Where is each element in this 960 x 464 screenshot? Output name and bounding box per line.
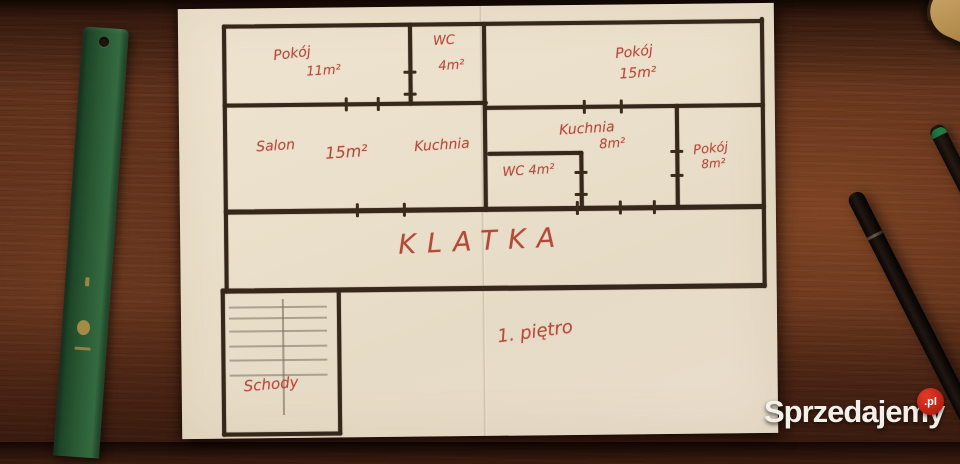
- room-area-pokoj-right: 8m²: [701, 156, 726, 171]
- wooden-object-corner: [917, 0, 960, 52]
- ruler: [53, 26, 129, 458]
- wall-outer-top: [222, 19, 764, 29]
- door-mark: [356, 203, 359, 217]
- wall-stairs-right: [337, 290, 343, 435]
- watermark-tld-badge: .pl: [917, 388, 944, 415]
- pen-green-band: [929, 125, 947, 139]
- green-tip-pen: [928, 122, 960, 232]
- wall-row1-bottom-right: [485, 103, 765, 110]
- floor-plan-paper: Pokój 11m² WC 4m² Pokój 15m² Salon 15m² …: [178, 3, 778, 439]
- watermark-tld: .pl: [924, 396, 937, 408]
- stair-tread: [229, 317, 327, 320]
- door-mark: [575, 193, 588, 196]
- wall-hall-bottom: [221, 283, 767, 294]
- door-mark: [620, 99, 623, 113]
- stairs-label: Schody: [243, 373, 299, 395]
- stair-tread: [229, 345, 327, 348]
- room-label-pokoj-top-left: Pokój: [272, 44, 311, 64]
- door-mark: [653, 200, 656, 214]
- wall-outer-right: [760, 17, 767, 288]
- stair-tread: [229, 306, 327, 309]
- room-label-kuchnia-open: Kuchnia: [414, 136, 470, 155]
- room-label-wc-top: WC: [433, 33, 456, 49]
- ruler-logo: [77, 320, 91, 336]
- room-label-pokoj-top-right: Pokój: [615, 43, 654, 63]
- ruler-hole: [99, 37, 110, 48]
- door-mark: [377, 97, 380, 111]
- ruler-logo-mark: [85, 277, 90, 286]
- wall-hall-top: [224, 204, 766, 215]
- room-label-kuchnia-right: Kuchnia: [559, 119, 615, 138]
- wall-central: [482, 22, 488, 212]
- room-label-wc-mid: WC 4m²: [502, 162, 555, 180]
- stair-tread: [229, 359, 327, 362]
- stair-tread: [229, 330, 327, 333]
- wall-wc-mid-top: [487, 151, 583, 156]
- hall-label: KLATKA: [398, 222, 567, 261]
- wall-stairs-left: [221, 289, 227, 437]
- floor-label: 1. piętro: [496, 316, 574, 347]
- wc-mid-name: WC: [502, 164, 525, 180]
- door-mark: [576, 201, 579, 215]
- door-mark: [670, 150, 683, 153]
- pen-cap-joint: [867, 230, 884, 240]
- door-mark: [403, 203, 406, 217]
- door-mark: [619, 200, 622, 214]
- wall-kuchnia-pokoj-divider: [675, 104, 680, 209]
- room-area-pokoj-top-right: 15m²: [619, 64, 657, 82]
- wall-stairs-bottom: [222, 431, 342, 436]
- wall-row1-bottom-left: [223, 101, 488, 108]
- door-mark: [403, 71, 416, 74]
- room-area-pokoj-top-left: 11m²: [306, 63, 341, 80]
- door-mark: [671, 174, 684, 177]
- door-mark: [345, 97, 348, 111]
- door-mark: [583, 100, 586, 114]
- door-mark: [574, 171, 587, 174]
- room-area-salon: 15m²: [325, 141, 368, 163]
- door-mark: [404, 93, 417, 96]
- wall-outer-left: [222, 25, 229, 294]
- room-area-kuchnia-right: 8m²: [599, 136, 626, 153]
- wc-mid-area: 4m²: [528, 162, 555, 179]
- room-label-salon: Salon: [256, 137, 296, 155]
- room-area-wc-top: 4m²: [438, 57, 465, 74]
- wall-wc-mid-right: [579, 151, 584, 210]
- ruler-logo-text: [74, 347, 90, 351]
